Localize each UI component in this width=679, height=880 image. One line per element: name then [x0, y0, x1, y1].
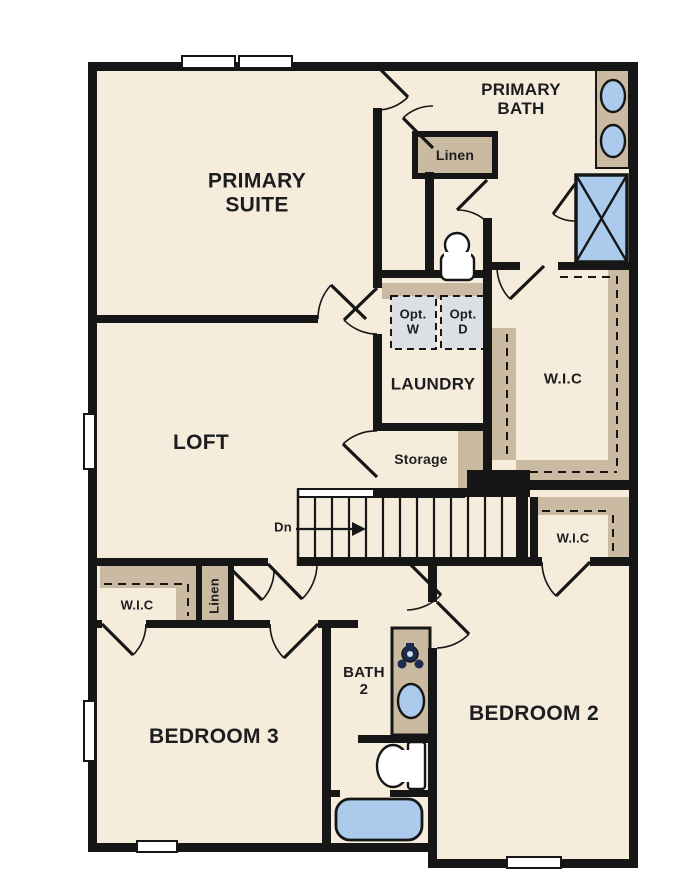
window-left-loft [84, 414, 95, 469]
window-bottom-bedroom3 [137, 841, 177, 852]
wall-stairs-bottom [298, 557, 542, 566]
window-bottom-bedroom2 [507, 857, 561, 868]
wic-main-shelf-left [492, 328, 516, 460]
linen-hall-closet [202, 566, 228, 628]
wall-laundry-wic-divider [483, 270, 492, 490]
wic-bedroom3-shelf-right [176, 566, 196, 622]
toilet-bath2 [377, 742, 425, 789]
sink-primary-2 [601, 125, 625, 157]
wall-closet-divider-2 [228, 566, 234, 628]
opt-washer-box [391, 296, 436, 349]
wall-suite-right [373, 108, 382, 288]
wall-bath-bottom-left [483, 262, 520, 270]
wall-bedroom3-top [146, 620, 270, 628]
window-top-2 [239, 56, 292, 68]
wall-suite-loft-divider [97, 315, 318, 323]
wall-bedroom3-top-jamb [97, 620, 102, 628]
wall-bedroom2-left-lower [428, 648, 437, 859]
bath2-sink [398, 684, 424, 718]
wall-wic-hall-left [530, 497, 538, 557]
wall-bath2-top [318, 620, 358, 628]
wall-tub-alcove-left [331, 790, 340, 797]
floor-plan: PRIMARY SUITE PRIMARY BATH Linen LOFT Op… [0, 0, 679, 880]
toilet-primary [441, 233, 474, 280]
wall-exterior-top [88, 62, 638, 71]
wall-laundry-left [373, 334, 382, 423]
opt-dryer-box [441, 296, 486, 349]
floor-plan-drawing [0, 0, 679, 880]
bathtub [336, 799, 422, 840]
window-top-1 [182, 56, 235, 68]
wall-toilet-corridor-left [425, 172, 434, 270]
wic-main-shelf-right [608, 270, 629, 480]
wall-loft-bottom [88, 558, 268, 566]
wall-bedroom3-bath2-divider [322, 628, 331, 843]
wall-wic-hall-bottom [590, 557, 629, 566]
wall-tub-alcove-right [390, 790, 430, 797]
wall-closet-divider-1 [196, 566, 202, 628]
wall-storage-top [373, 423, 492, 431]
shower [576, 175, 627, 262]
window-left-bedroom3 [84, 701, 95, 761]
wic-hall-shelf-right [608, 497, 629, 560]
wall-exterior-right [629, 62, 638, 868]
wall-wic-main-bottom [492, 480, 629, 490]
stair-right-wall [516, 497, 528, 557]
sink-primary-1 [601, 80, 625, 112]
